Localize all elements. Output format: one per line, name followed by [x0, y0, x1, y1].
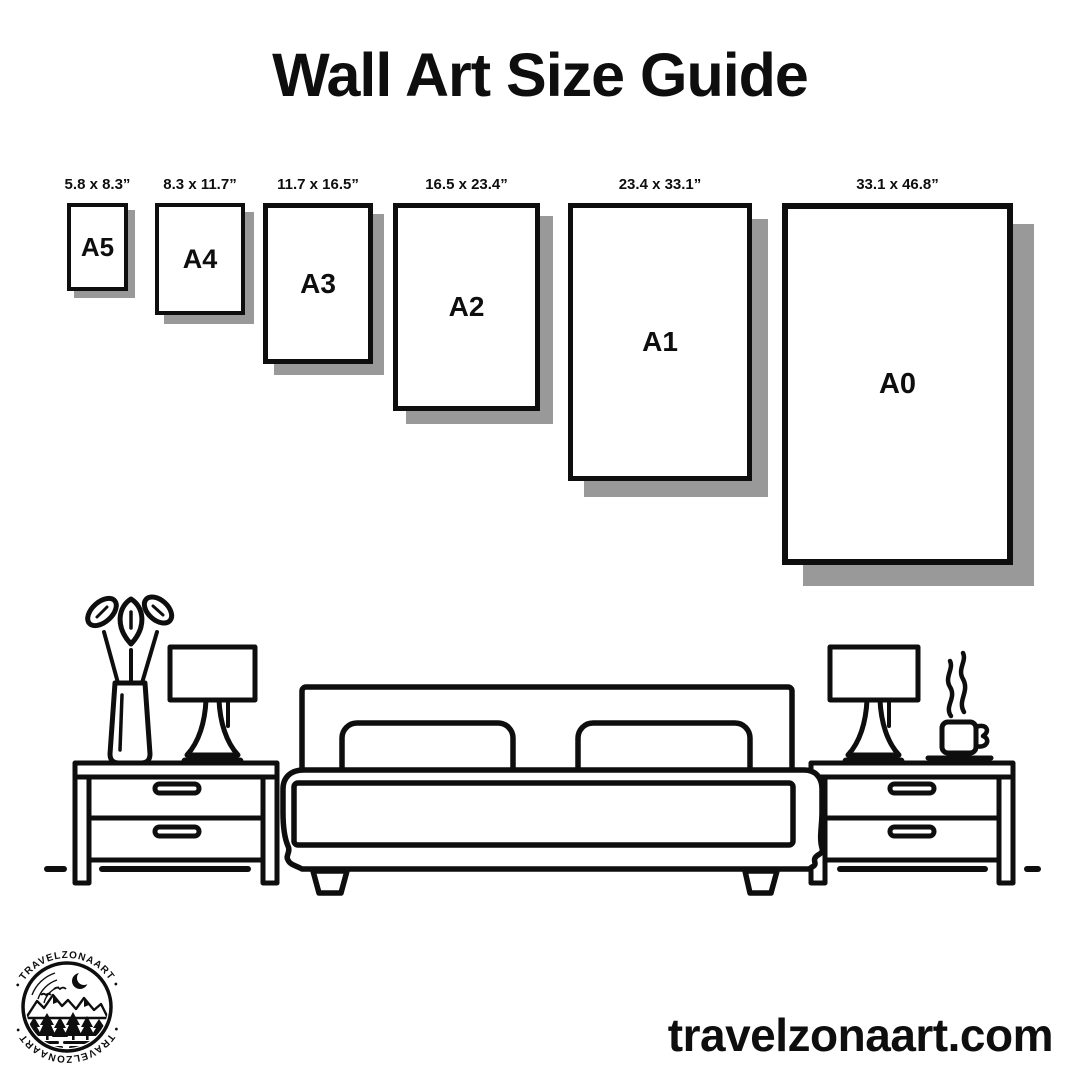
- right-nightstand: [811, 763, 1013, 883]
- paper-dimensions-label: 11.7 x 16.5”: [277, 176, 359, 193]
- paper-size-a4: 8.3 x 11.7” A4: [155, 203, 245, 315]
- bedroom-illustration: [0, 580, 1080, 900]
- bed-leg-right: [745, 871, 777, 893]
- paper-sheet: A5: [67, 203, 128, 291]
- paper-size-name: A5: [81, 232, 114, 263]
- lampshade: [170, 647, 255, 700]
- plant-vase: [83, 592, 177, 763]
- vase: [110, 683, 150, 763]
- bed: [283, 687, 822, 893]
- paper-dimensions-label: 16.5 x 23.4”: [425, 176, 508, 193]
- left-nightstand: [75, 763, 277, 883]
- lampshade: [830, 647, 918, 700]
- paper-dimensions-label: 23.4 x 33.1”: [619, 176, 702, 193]
- paper-size-name: A3: [300, 268, 336, 300]
- bed-front-panel: [294, 783, 793, 845]
- paper-size-name: A1: [642, 326, 678, 358]
- left-lamp: [170, 647, 255, 761]
- paper-size-name: A4: [183, 244, 218, 275]
- paper-size-name: A2: [449, 291, 485, 323]
- steam: [948, 661, 952, 716]
- paper-dimensions-label: 8.3 x 11.7”: [163, 176, 236, 193]
- right-lamp: [830, 647, 918, 761]
- steam: [961, 653, 965, 712]
- paper-sheet: A0: [782, 203, 1013, 565]
- website-url: travelzonaart.com: [668, 1008, 1053, 1062]
- paper-dimensions-label: 33.1 x 46.8”: [856, 176, 939, 193]
- coffee-cup: [928, 653, 991, 758]
- paper-sheet: A4: [155, 203, 245, 315]
- paper-size-name: A0: [879, 368, 916, 401]
- paper-size-a0: 33.1 x 46.8” A0: [782, 203, 1013, 565]
- paper-sheet: A2: [393, 203, 540, 411]
- poster: Wall Art Size Guide 5.8 x 8.3” A5 8.3 x …: [0, 0, 1080, 1080]
- paper-size-a5: 5.8 x 8.3” A5: [67, 203, 128, 291]
- brand-logo: • TRAVELZONAART • • TRAVELZONAART •: [6, 946, 128, 1068]
- paper-size-a1: 23.4 x 33.1” A1: [568, 203, 752, 481]
- paper-size-a3: 11.7 x 16.5” A3: [263, 203, 373, 364]
- paper-sheet: A1: [568, 203, 752, 481]
- bed-leg-left: [313, 871, 347, 893]
- paper-dimensions-label: 5.8 x 8.3”: [65, 176, 131, 193]
- paper-size-a2: 16.5 x 23.4” A2: [393, 203, 540, 411]
- page-title: Wall Art Size Guide: [0, 40, 1080, 110]
- paper-sheet: A3: [263, 203, 373, 364]
- cup: [942, 722, 976, 753]
